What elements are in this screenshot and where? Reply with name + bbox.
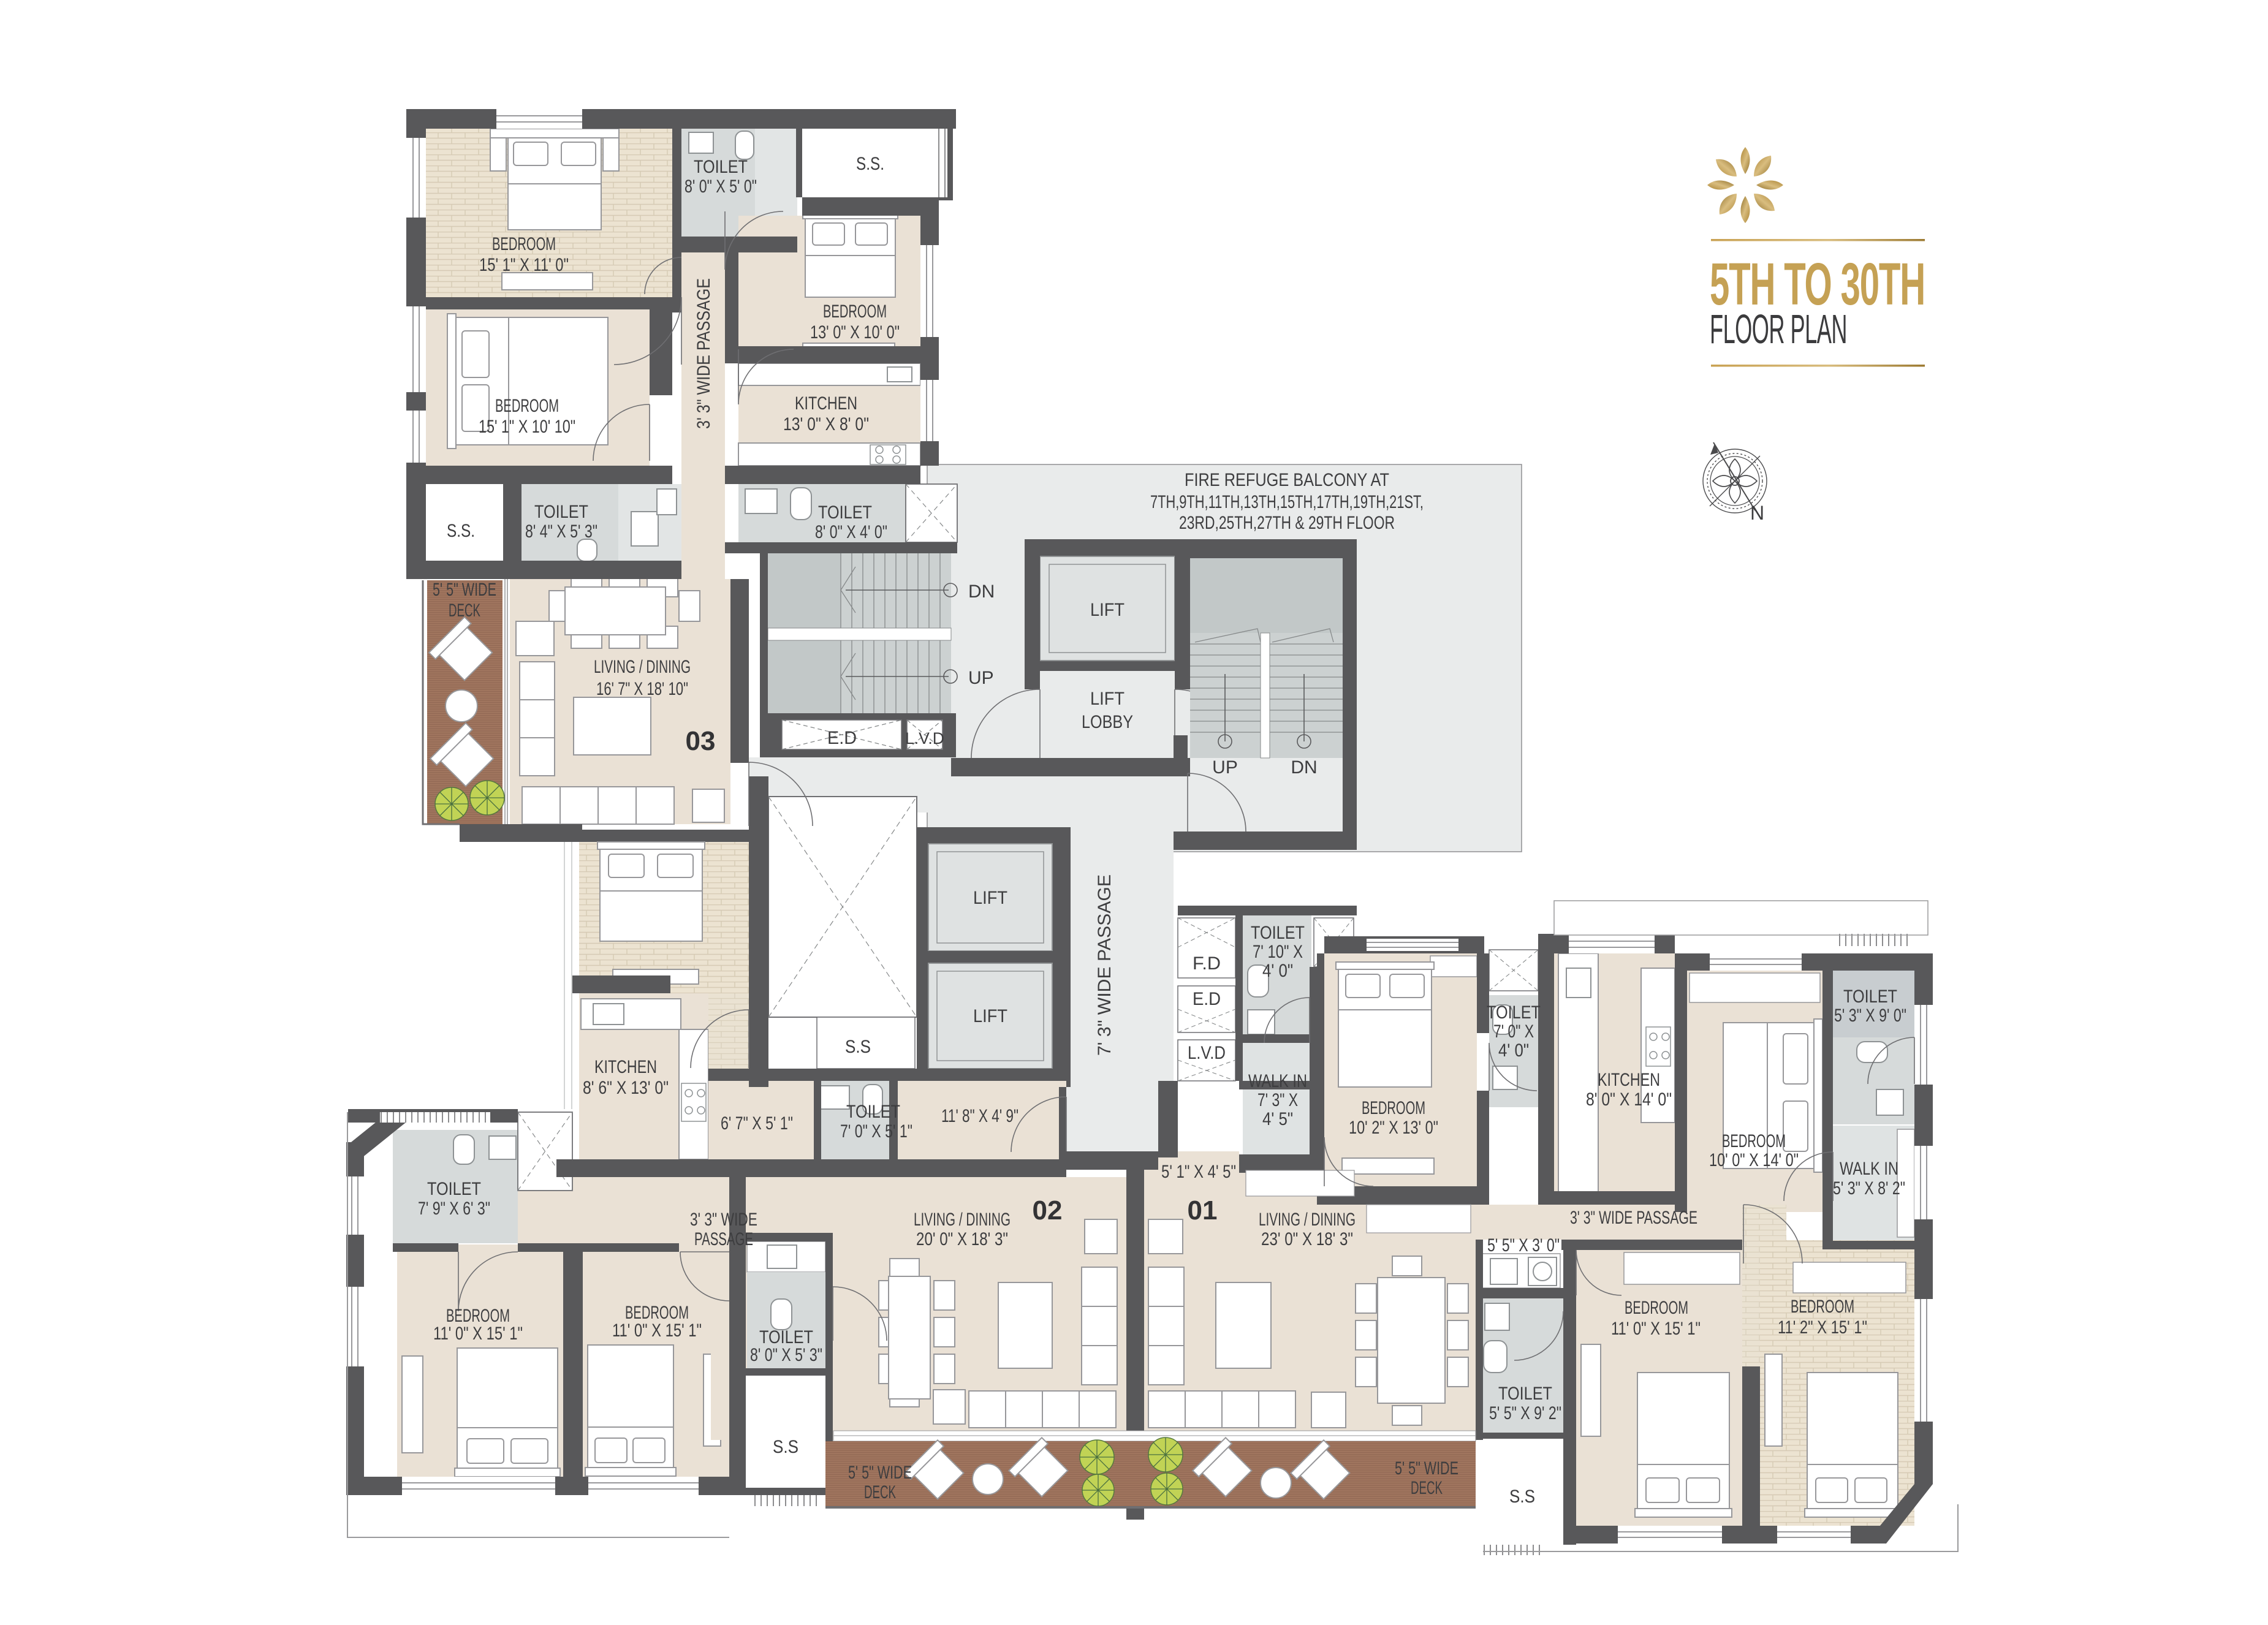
svg-text:TOILET: TOILET [846,1102,900,1122]
svg-text:8' 0" X 5' 3": 8' 0" X 5' 3" [750,1345,822,1365]
svg-text:BEDROOM: BEDROOM [823,301,887,322]
svg-text:7' 10" X: 7' 10" X [1253,942,1303,962]
svg-text:S.S: S.S [773,1437,798,1457]
svg-text:8' 6" X 13' 0": 8' 6" X 13' 0" [583,1078,669,1098]
svg-text:TOILET: TOILET [427,1179,481,1199]
svg-text:LIVING / DINING: LIVING / DINING [914,1210,1011,1230]
svg-text:3' 3" WIDE PASSAGE: 3' 3" WIDE PASSAGE [694,278,714,429]
svg-text:7TH,9TH,11TH,13TH,15TH,17TH,19: 7TH,9TH,11TH,13TH,15TH,17TH,19TH,21ST, [1150,492,1424,512]
svg-text:LIFT: LIFT [973,888,1007,908]
svg-text:L.V.D: L.V.D [905,729,944,748]
svg-text:16' 7" X 18' 10": 16' 7" X 18' 10" [596,679,688,699]
svg-text:LIFT: LIFT [973,1006,1007,1026]
svg-text:N: N [1750,502,1764,524]
svg-text:6' 7" X 5' 1": 6' 7" X 5' 1" [721,1113,793,1134]
svg-text:KITCHEN: KITCHEN [1598,1070,1660,1090]
svg-text:4' 0": 4' 0" [1262,961,1293,981]
svg-text:BEDROOM: BEDROOM [495,396,559,416]
svg-text:02: 02 [1033,1195,1063,1225]
svg-text:7' 0" X: 7' 0" X [1493,1021,1534,1042]
svg-text:15' 1" X 11' 0": 15' 1" X 11' 0" [479,255,569,275]
svg-text:7' 0" X 5' 1": 7' 0" X 5' 1" [840,1121,912,1142]
svg-text:LIVING / DINING: LIVING / DINING [594,657,691,677]
svg-text:5' 1" X 4' 5": 5' 1" X 4' 5" [1161,1162,1236,1182]
svg-text:BEDROOM: BEDROOM [1722,1131,1786,1151]
svg-text:03: 03 [686,726,716,756]
svg-text:TOILET: TOILET [1487,1002,1541,1023]
svg-text:20' 0" X 18' 3": 20' 0" X 18' 3" [916,1229,1008,1249]
svg-text:LIFT: LIFT [1090,689,1125,709]
svg-text:4' 5": 4' 5" [1262,1109,1293,1129]
svg-text:PASSAGE: PASSAGE [694,1229,753,1249]
svg-text:S.S: S.S [1509,1487,1535,1507]
svg-text:TOILET: TOILET [818,502,872,523]
svg-text:DN: DN [1291,757,1317,778]
svg-text:5' 5" X 3' 0": 5' 5" X 3' 0" [1487,1235,1560,1256]
svg-text:5' 5" WIDE: 5' 5" WIDE [1395,1458,1458,1479]
svg-text:E.D: E.D [1193,989,1221,1009]
svg-text:FIRE REFUGE BALCONY AT: FIRE REFUGE BALCONY AT [1185,470,1389,490]
svg-text:5' 3" X 8' 2": 5' 3" X 8' 2" [1833,1178,1905,1199]
svg-text:01: 01 [1188,1195,1218,1225]
svg-text:8' 0" X 4' 0": 8' 0" X 4' 0" [815,522,887,542]
svg-text:UP: UP [1212,757,1238,778]
svg-text:E.D: E.D [827,728,857,748]
svg-text:L.V.D: L.V.D [1188,1043,1226,1063]
svg-text:4' 0": 4' 0" [1498,1040,1529,1061]
svg-text:TOILET: TOILET [1498,1384,1552,1404]
svg-text:11' 8" X 4' 9": 11' 8" X 4' 9" [941,1106,1018,1126]
svg-text:S.S.: S.S. [447,521,475,541]
svg-text:11' 2" X 15' 1": 11' 2" X 15' 1" [1778,1317,1867,1338]
svg-text:5' 5" X 9' 2": 5' 5" X 9' 2" [1489,1403,1561,1423]
svg-text:15' 1" X 10' 10": 15' 1" X 10' 10" [479,417,575,437]
svg-text:5' 5" WIDE: 5' 5" WIDE [848,1463,912,1483]
svg-text:5' 5" WIDE: 5' 5" WIDE [433,580,496,600]
svg-text:S.S.: S.S. [856,154,884,174]
svg-text:S.S: S.S [845,1037,871,1057]
svg-text:F.D: F.D [1193,953,1221,974]
svg-text:TOILET: TOILET [694,157,748,177]
svg-text:KITCHEN: KITCHEN [795,393,857,414]
svg-text:TOILET: TOILET [1251,923,1305,943]
svg-text:10' 0" X 14' 0": 10' 0" X 14' 0" [1709,1150,1799,1170]
svg-text:WALK IN: WALK IN [1840,1159,1898,1179]
svg-text:BEDROOM: BEDROOM [492,234,556,254]
svg-text:DECK: DECK [1411,1478,1443,1498]
svg-text:7' 3" WIDE PASSAGE: 7' 3" WIDE PASSAGE [1094,874,1115,1056]
svg-text:11' 0" X 15' 1": 11' 0" X 15' 1" [433,1324,523,1344]
svg-text:TOILET: TOILET [1843,987,1897,1007]
svg-text:BEDROOM: BEDROOM [1791,1297,1854,1317]
svg-text:BEDROOM: BEDROOM [1362,1098,1425,1118]
svg-text:10' 2" X 13' 0": 10' 2" X 13' 0" [1349,1118,1438,1138]
svg-text:5' 3" X 9' 0": 5' 3" X 9' 0" [1834,1006,1906,1026]
svg-text:23RD,25TH,27TH & 29TH FLOOR: 23RD,25TH,27TH & 29TH FLOOR [1179,513,1395,533]
svg-text:UP: UP [968,668,994,688]
svg-text:3' 3" WIDE: 3' 3" WIDE [690,1210,757,1230]
svg-text:8' 0" X 5' 0": 8' 0" X 5' 0" [685,176,757,197]
svg-text:WALK IN: WALK IN [1248,1071,1307,1091]
svg-text:LIFT: LIFT [1090,600,1125,620]
svg-text:7' 9" X 6' 3": 7' 9" X 6' 3" [418,1199,490,1219]
svg-text:13' 0" X 8' 0": 13' 0" X 8' 0" [783,414,869,434]
svg-text:KITCHEN: KITCHEN [594,1057,657,1077]
svg-text:3' 3" WIDE PASSAGE: 3' 3" WIDE PASSAGE [1570,1208,1697,1228]
svg-text:11' 0" X 15' 1": 11' 0" X 15' 1" [1611,1319,1701,1339]
svg-text:TOILET: TOILET [534,502,588,522]
svg-text:LOBBY: LOBBY [1082,712,1133,732]
svg-text:7' 3" X: 7' 3" X [1257,1090,1298,1110]
svg-text:BEDROOM: BEDROOM [1625,1298,1688,1318]
svg-text:8' 4" X 5' 3": 8' 4" X 5' 3" [525,521,597,542]
svg-text:DN: DN [968,581,995,602]
svg-text:DECK: DECK [864,1482,896,1502]
svg-text:FLOOR PLAN: FLOOR PLAN [1710,306,1847,352]
svg-text:13' 0" X 10' 0": 13' 0" X 10' 0" [810,322,900,343]
svg-text:LIVING / DINING: LIVING / DINING [1259,1210,1356,1230]
svg-text:23' 0" X 18' 3": 23' 0" X 18' 3" [1261,1229,1353,1249]
svg-text:8' 0" X 14' 0": 8' 0" X 14' 0" [1586,1089,1672,1110]
svg-text:11' 0" X 15' 1": 11' 0" X 15' 1" [612,1320,702,1341]
